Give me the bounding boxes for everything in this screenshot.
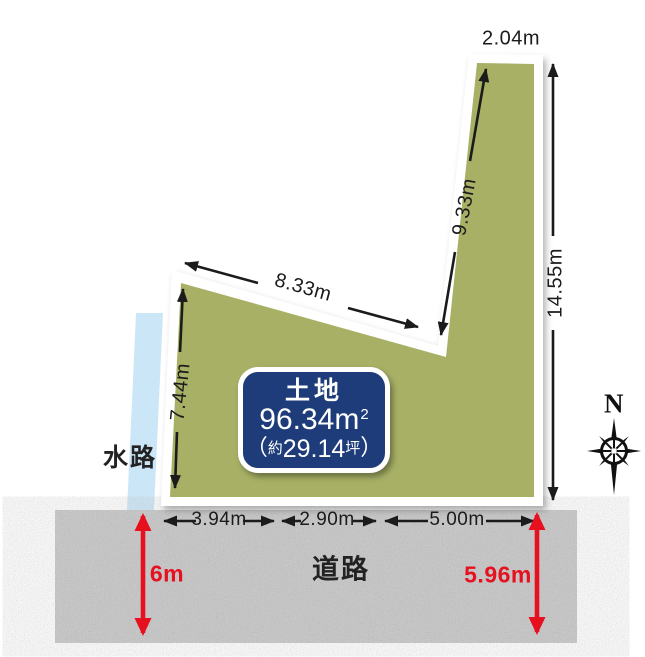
road-width-right-label: 5.96m <box>464 562 532 589</box>
tsubo-value: 29.14 <box>283 436 346 462</box>
land-area: 96.34m2 <box>259 404 368 435</box>
waterway-strip <box>127 313 163 510</box>
site-plan-canvas: 2.04m 14.55m 9.33m 8.33m 7.44m 3.94m 2.9… <box>0 0 645 657</box>
land-area-value: 96.34 <box>259 403 334 436</box>
land-area-unit: m <box>334 403 359 436</box>
dimension-label-right: 14.55m <box>545 248 568 318</box>
dimension-label-frontage-left: 3.94m <box>191 509 246 531</box>
dimension-label-top: 2.04m <box>482 28 540 51</box>
dimension-label-frontage-middle: 2.90m <box>299 509 354 531</box>
land-title: 土地 <box>285 378 343 404</box>
tsubo-unit: 坪 <box>345 441 360 457</box>
land-info-card: 土地 96.34m2 （約29.14坪） <box>238 367 390 473</box>
tsubo-paren-open: （ <box>246 437 268 460</box>
compass-north-letter: N <box>604 389 624 420</box>
road-width-left-label: 6m <box>150 561 184 588</box>
land-tsubo: （約29.14坪） <box>246 436 383 462</box>
tsubo-paren-close: ） <box>360 437 382 460</box>
road-label: 道路 <box>312 548 370 587</box>
dimension-label-frontage-right: 5.00m <box>429 509 484 531</box>
compass-rose-icon <box>584 418 643 495</box>
waterway-label: 水路 <box>103 438 157 474</box>
tsubo-approx-prefix: 約 <box>268 441 283 457</box>
land-area-superscript: 2 <box>360 406 368 423</box>
